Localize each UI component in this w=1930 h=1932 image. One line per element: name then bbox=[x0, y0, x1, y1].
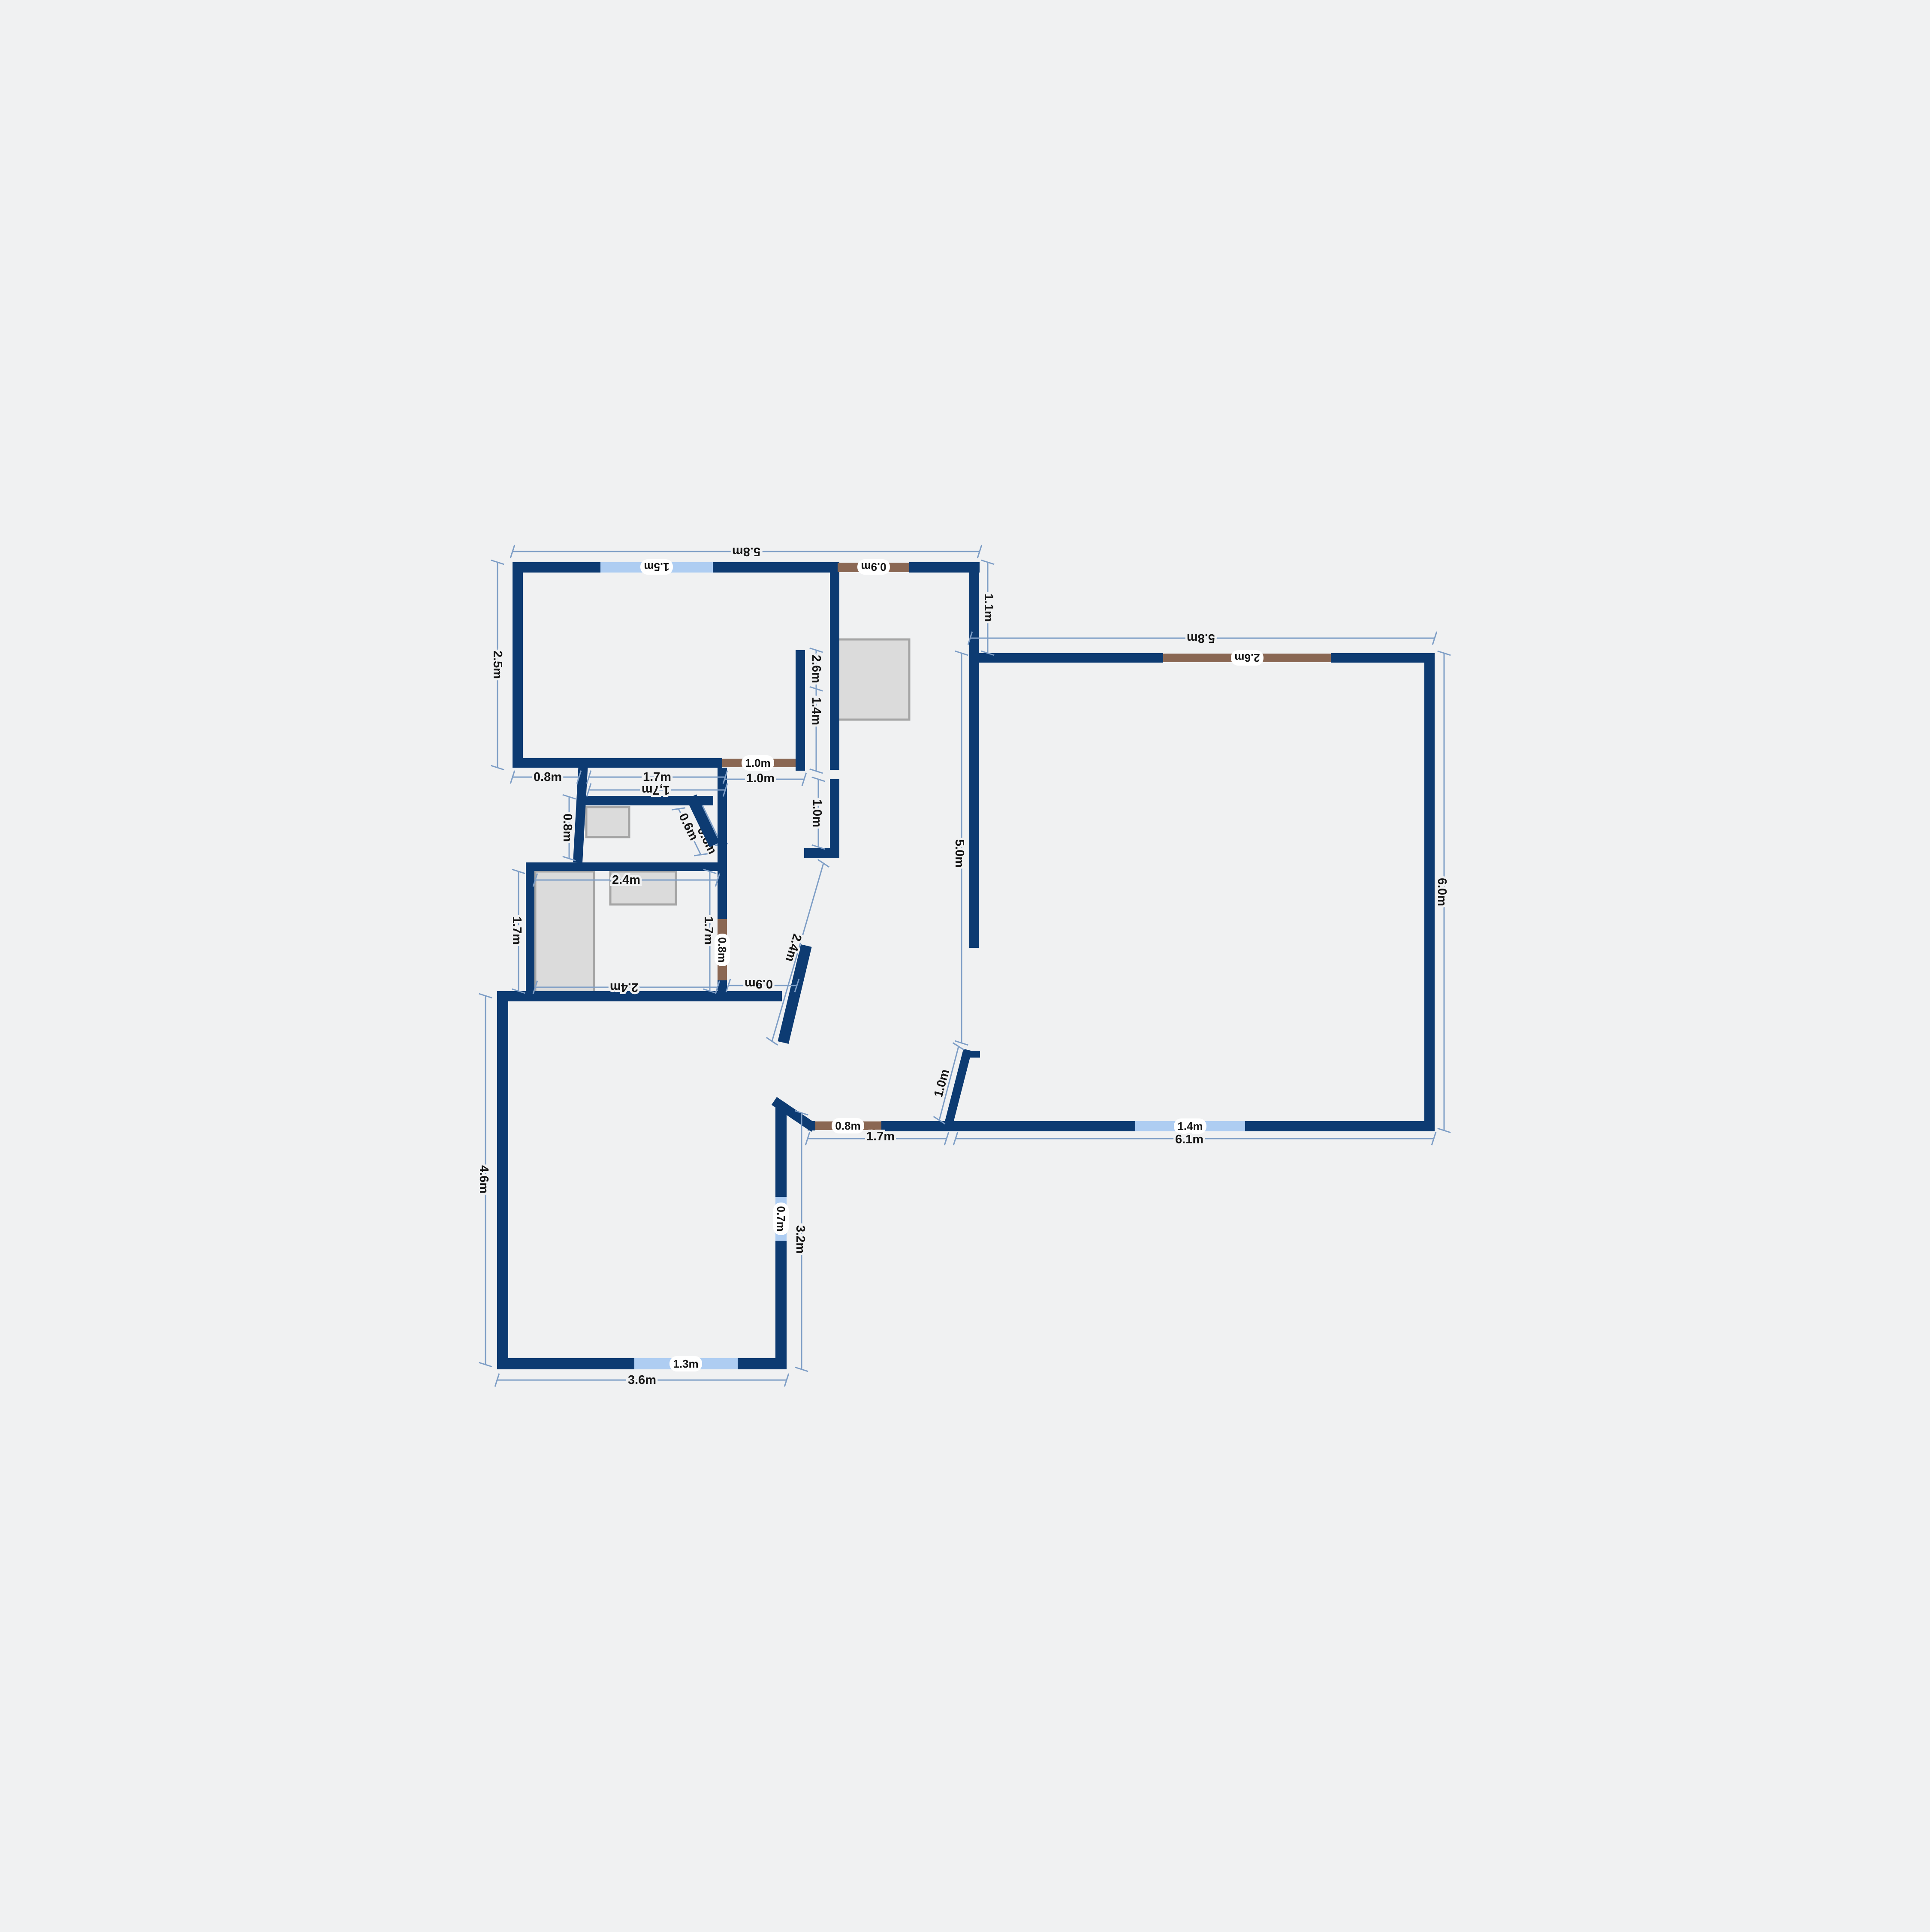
dimension-label: 1.7m bbox=[702, 916, 715, 945]
dimension-text: 1.4m bbox=[1177, 1120, 1203, 1133]
dimension-label: 1.5m bbox=[640, 559, 673, 575]
dimension-label: 1.4m bbox=[809, 697, 823, 725]
dimension-text: 6.1m bbox=[1175, 1133, 1203, 1146]
dimension-label: 4.6m bbox=[477, 1165, 491, 1194]
dimension-text: 4.6m bbox=[477, 1165, 491, 1194]
dimension-text: 0.8m bbox=[716, 937, 729, 962]
floor-plan: 0.6m5.8m1.5m0.9m2.5m1.1m2.6m1.4m1.0m1.0m… bbox=[0, 0, 1930, 1930]
dimension-text: 2.4m bbox=[612, 873, 640, 887]
dimension-label: 1,7m bbox=[642, 783, 670, 797]
dimension-label: 2.5m bbox=[491, 651, 504, 679]
dimension-text: 1.4m bbox=[809, 697, 823, 725]
dimension-label: 1.7m bbox=[866, 1130, 895, 1143]
dimension-text: 1.7m bbox=[702, 916, 715, 945]
dimension-label: 0.8m bbox=[715, 934, 730, 966]
dimension-label: 3.6m bbox=[628, 1373, 656, 1387]
landing bbox=[837, 639, 909, 720]
dimension-text: 2.6m bbox=[1234, 651, 1260, 664]
dimension-label: 1.0m bbox=[742, 755, 774, 771]
background bbox=[0, 0, 1930, 1930]
cabinet bbox=[586, 807, 629, 837]
dimension-text: 1,7m bbox=[642, 783, 670, 797]
dimension-text: 3.6m bbox=[628, 1373, 656, 1387]
dimension-label: 1.4m bbox=[1174, 1118, 1206, 1134]
dimension-label: 3.2m bbox=[793, 1225, 807, 1254]
dimension-label: 2.6m bbox=[1231, 650, 1264, 666]
dimension-label: 2.4m bbox=[612, 873, 640, 887]
bed bbox=[535, 871, 594, 992]
dimension-label: 1.7m bbox=[510, 916, 524, 945]
dimension-label: 0.8m bbox=[561, 814, 574, 842]
dimension-label: 0.8m bbox=[832, 1118, 864, 1133]
dimension-text: 1.0m bbox=[746, 772, 775, 785]
dimension-text: 1.0m bbox=[810, 799, 824, 827]
dimension-text: 1.7m bbox=[643, 770, 671, 784]
dimension-text: 2.6m bbox=[809, 655, 823, 683]
dimension-text: 2.5m bbox=[491, 651, 504, 679]
dimension-label: 1.7m bbox=[643, 770, 671, 784]
dimension-text: 5.8m bbox=[1187, 631, 1215, 645]
dimension-text: 0.8m bbox=[534, 770, 562, 784]
dimension-label: 5.8m bbox=[1187, 631, 1215, 645]
dimension-text: 1.0m bbox=[745, 757, 770, 769]
dimension-label: 0.9m bbox=[857, 559, 890, 575]
dimension-label: 1.0m bbox=[746, 772, 775, 785]
dimension-label: 0.7m bbox=[773, 1203, 789, 1235]
dimension-text: 3.2m bbox=[793, 1225, 807, 1254]
dimension-text: 5.0m bbox=[953, 839, 966, 868]
dimension-label: 1.1m bbox=[982, 594, 995, 622]
floor-plan-page: 0.6m5.8m1.5m0.9m2.5m1.1m2.6m1.4m1.0m1.0m… bbox=[0, 0, 1930, 1930]
dimension-text: 1.7m bbox=[510, 916, 524, 945]
dimension-text: 0.8m bbox=[835, 1119, 860, 1132]
dimension-text: 0.9m bbox=[861, 561, 886, 573]
dimension-text: 6.0m bbox=[1435, 878, 1449, 906]
dimension-text: 0.8m bbox=[561, 814, 574, 842]
dimension-label: 6.0m bbox=[1435, 878, 1449, 906]
dimension-text: 1.7m bbox=[866, 1130, 895, 1143]
dimension-text: 1.5m bbox=[644, 561, 669, 573]
dimension-label: 5.8m bbox=[732, 545, 760, 558]
dimension-text: 0.9m bbox=[745, 977, 773, 991]
dimension-label: 0.8m bbox=[534, 770, 562, 784]
dimension-label: 2.6m bbox=[809, 655, 823, 683]
dimension-text: 1.3m bbox=[673, 1357, 698, 1370]
dimension-label: 0.9m bbox=[745, 977, 773, 991]
dimension-label: 6.1m bbox=[1175, 1133, 1203, 1146]
dimension-text: 5.8m bbox=[732, 545, 760, 558]
dimension-label: 2.4m bbox=[610, 980, 638, 994]
dimension-text: 0.7m bbox=[775, 1206, 787, 1231]
dimension-label: 1.3m bbox=[669, 1356, 702, 1371]
dimension-label: 5.0m bbox=[953, 839, 966, 868]
dimension-text: 1.1m bbox=[982, 594, 995, 622]
dimension-label: 1.0m bbox=[810, 799, 824, 827]
dimension-text: 2.4m bbox=[610, 980, 638, 994]
